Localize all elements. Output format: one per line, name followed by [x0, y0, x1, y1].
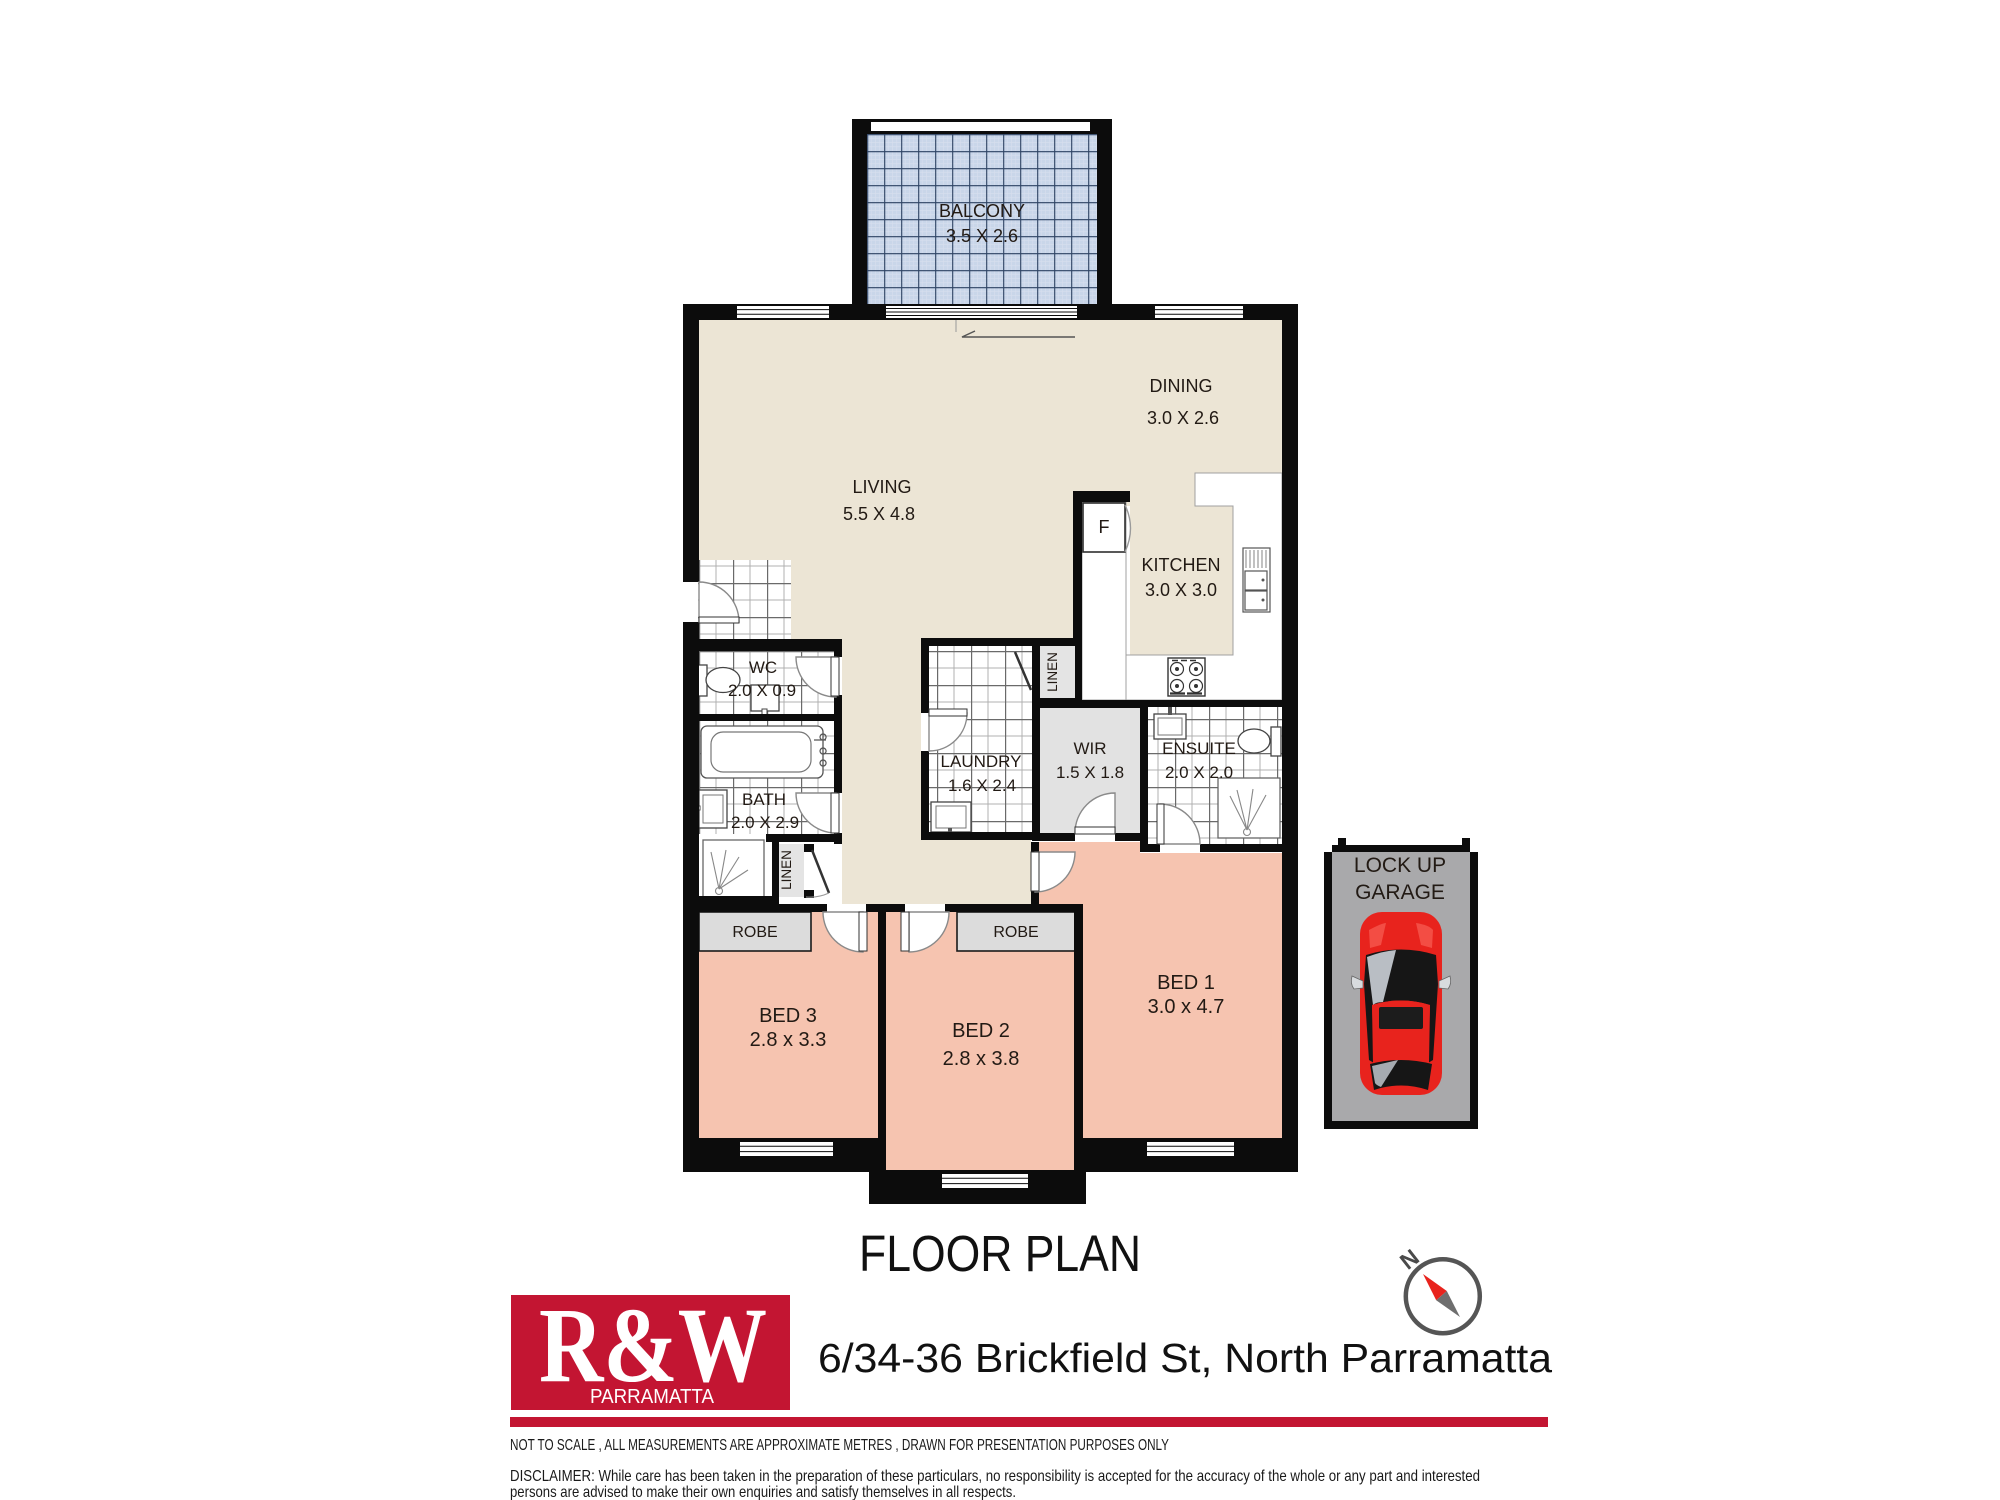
svg-text:BED 2: BED 2: [952, 1020, 1010, 1042]
svg-text:LINEN: LINEN: [1045, 652, 1060, 692]
svg-text:BALCONY: BALCONY: [939, 201, 1025, 221]
svg-text:3.5 X 2.6: 3.5 X 2.6: [946, 226, 1018, 246]
svg-text:2.8 x 3.8: 2.8 x 3.8: [943, 1048, 1020, 1070]
svg-text:1.5 X 1.8: 1.5 X 1.8: [1056, 763, 1124, 782]
svg-text:2.0 X 2.0: 2.0 X 2.0: [1165, 763, 1233, 782]
svg-text:LIVING: LIVING: [852, 477, 911, 497]
svg-text:NOT TO SCALE , ALL MEASUREMENT: NOT TO SCALE , ALL MEASUREMENTS ARE APPR…: [510, 1437, 1169, 1454]
svg-text:3.0 X 2.6: 3.0 X 2.6: [1147, 408, 1219, 428]
svg-text:BATH: BATH: [742, 790, 786, 809]
svg-text:PARRAMATTA: PARRAMATTA: [590, 1386, 715, 1408]
svg-text:GARAGE: GARAGE: [1355, 881, 1445, 904]
svg-text:6/34-36 Brickfield St, North P: 6/34-36 Brickfield St, North Parramatta: [818, 1335, 1552, 1381]
svg-text:ROBE: ROBE: [732, 924, 777, 941]
svg-text:LAUNDRY: LAUNDRY: [941, 752, 1022, 771]
svg-text:5.5 X 4.8: 5.5 X 4.8: [843, 504, 915, 524]
svg-text:ROBE: ROBE: [993, 924, 1038, 941]
svg-text:2.8 x 3.3: 2.8 x 3.3: [750, 1029, 827, 1051]
svg-text:DISCLAIMER: While care has be: DISCLAIMER: While care has been taken in…: [510, 1468, 1480, 1485]
svg-text:F: F: [1099, 517, 1110, 537]
svg-text:1.6 X 2.4: 1.6 X 2.4: [948, 776, 1016, 795]
svg-text:2.0 X 2.9: 2.0 X 2.9: [731, 813, 799, 832]
svg-text:WC: WC: [749, 658, 777, 677]
svg-text:LINEN: LINEN: [779, 850, 794, 890]
svg-text:BED 1: BED 1: [1157, 972, 1215, 994]
svg-text:persons are advised to make th: persons are advised to make their own en…: [510, 1484, 1016, 1500]
svg-text:FLOOR PLAN: FLOOR PLAN: [859, 1225, 1141, 1282]
svg-text:3.0 X 3.0: 3.0 X 3.0: [1145, 580, 1217, 600]
svg-text:DINING: DINING: [1150, 376, 1213, 396]
svg-text:BED 3: BED 3: [759, 1005, 817, 1027]
svg-text:LOCK UP: LOCK UP: [1354, 854, 1446, 877]
svg-text:3.0 x 4.7: 3.0 x 4.7: [1148, 996, 1225, 1018]
svg-text:WIR: WIR: [1073, 739, 1106, 758]
svg-text:ENSUITE: ENSUITE: [1162, 739, 1236, 758]
svg-text:KITCHEN: KITCHEN: [1141, 555, 1220, 575]
svg-text:2.0 X 0.9: 2.0 X 0.9: [728, 681, 796, 700]
